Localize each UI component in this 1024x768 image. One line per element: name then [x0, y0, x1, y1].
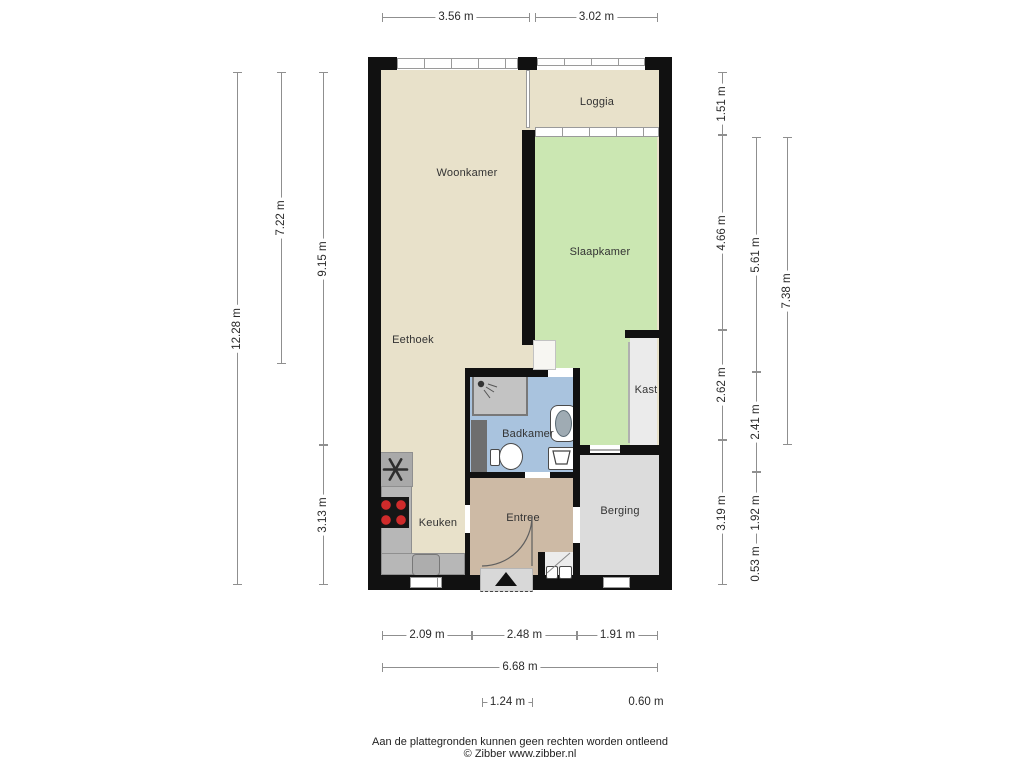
dimension-label: 1.92 m [750, 492, 762, 533]
washbasin-bowl [555, 410, 572, 437]
dimension-label: 7.22 m [275, 197, 287, 238]
threshold-line [590, 449, 620, 451]
room-label-keuken: Keuken [419, 517, 458, 529]
meter-unit [559, 566, 572, 579]
dimension-label: 2.09 m [406, 629, 447, 641]
copyright-text: © Zibber www.zibber.nl [368, 748, 672, 760]
dimension-label: 9.15 m [317, 238, 329, 279]
door-opening [465, 505, 470, 533]
cooktop [378, 497, 409, 528]
dimension-label: 1.91 m [597, 629, 638, 641]
dimension-label: 2.48 m [504, 629, 545, 641]
dimension-label: 2.41 m [750, 401, 762, 442]
meter-unit [546, 566, 558, 579]
footer: Aan de plattegronden kunnen geen rechten… [368, 736, 672, 760]
dimension-label: 1.51 m [716, 83, 728, 124]
window-loggia [535, 127, 659, 137]
floorplan-page: { "footer": { "line1": "Aan de plattegro… [0, 0, 1024, 768]
wall [465, 472, 580, 478]
dimension-label: 0.53 m [750, 543, 762, 584]
dimension-label: 3.19 m [716, 492, 728, 533]
glass-partition [526, 70, 530, 128]
room-label-woonkamer: Woonkamer [437, 167, 498, 179]
room-label-badkamer: Badkamer [502, 428, 554, 440]
window-storage [603, 577, 630, 588]
door-opening [573, 507, 580, 543]
dimension-label: 1.24 m [487, 696, 528, 708]
dimension-label: 4.66 m [716, 212, 728, 253]
dimension-label: 5.61 m [750, 234, 762, 275]
laundry-unit [548, 447, 575, 470]
shaft [471, 420, 487, 472]
wall [573, 368, 580, 575]
room-label-berging: Berging [600, 505, 639, 517]
door-opening [525, 472, 550, 478]
extractor-unit [378, 452, 413, 487]
room-label-entree: Entree [506, 512, 540, 524]
dimension-label: 12.28 m [231, 305, 243, 353]
dimension-label: 7.38 m [781, 270, 793, 311]
window-kitchen [410, 577, 442, 588]
entrance-arrow-icon [495, 572, 517, 586]
wall [368, 57, 397, 70]
wall [645, 57, 672, 70]
toilet-bowl [499, 443, 523, 470]
wall [625, 330, 659, 338]
disclaimer-text: Aan de plattegronden kunnen geen rechten… [368, 736, 672, 748]
room-label-slaapkamer: Slaapkamer [570, 246, 631, 258]
wall [659, 57, 672, 590]
kitchen-sink [412, 554, 440, 576]
closet-slide-door [628, 342, 630, 443]
floorplan: WoonkamerLoggiaSlaapkamerEethoekKastBadk… [0, 0, 1024, 768]
dimension-label: 2.62 m [716, 364, 728, 405]
wall [538, 552, 545, 575]
dimension-label: 6.68 m [499, 661, 540, 673]
window-livingroom [397, 58, 518, 69]
wall [368, 57, 381, 590]
dimension-label: 3.02 m [576, 11, 617, 23]
room-label-kast: Kast [635, 384, 658, 396]
dimension-label: 3.13 m [317, 494, 329, 535]
dimension-label: 0.60 m [625, 696, 666, 708]
door-opening [533, 340, 556, 370]
loggia-railing [537, 58, 645, 66]
shower [472, 374, 528, 416]
wall [518, 57, 537, 70]
room-label-eethoek: Eethoek [392, 334, 434, 346]
dimension-label: 3.56 m [435, 11, 476, 23]
wall [522, 130, 535, 345]
room-label-loggia: Loggia [580, 96, 614, 108]
